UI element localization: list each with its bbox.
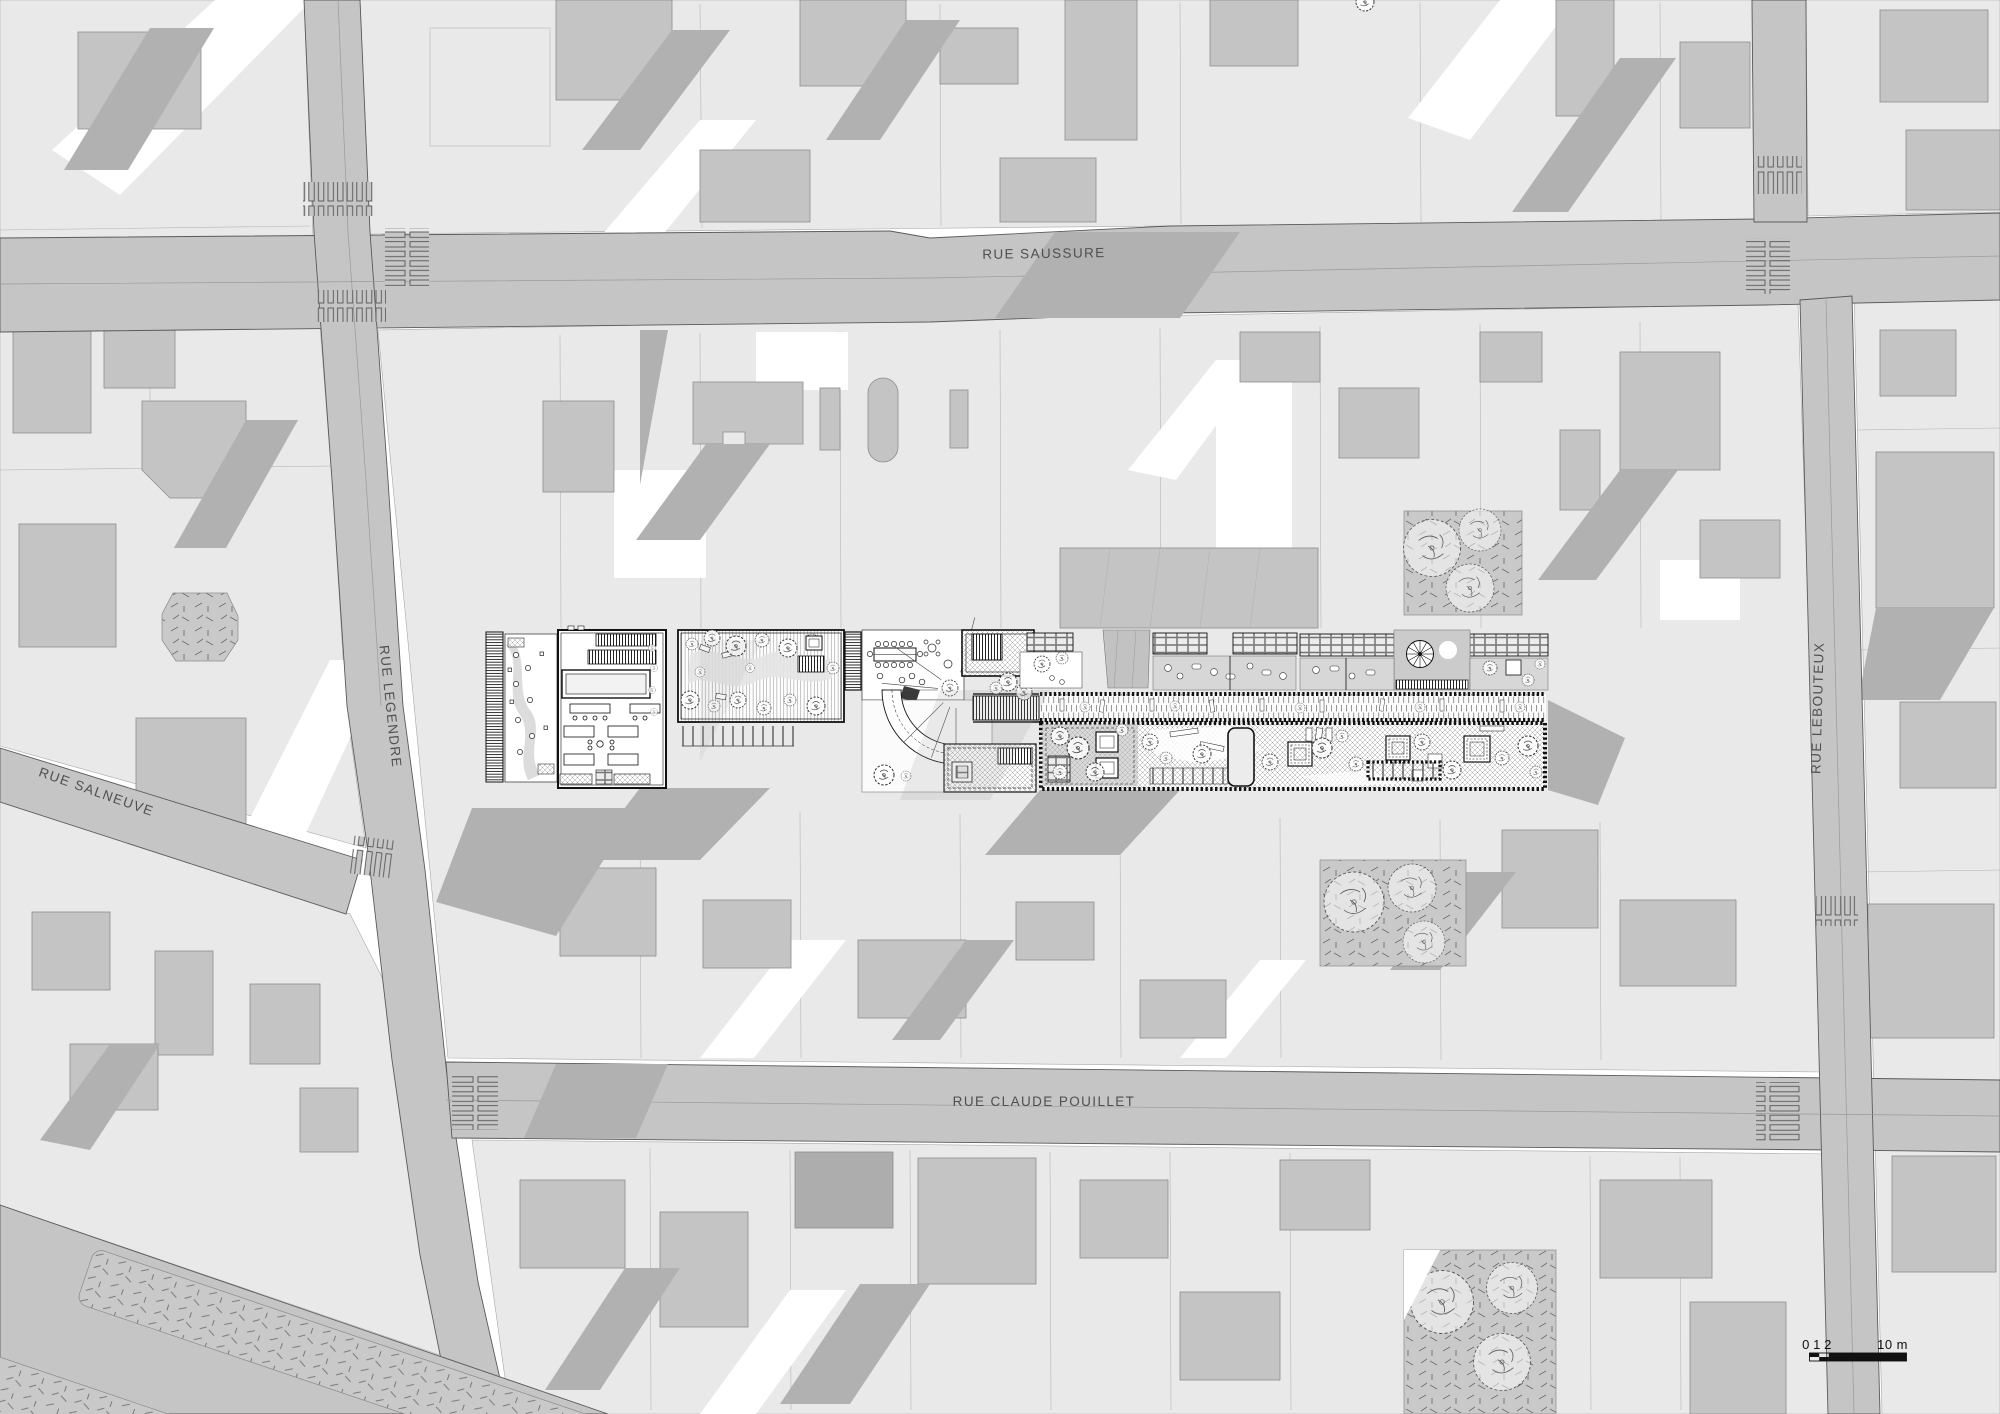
tree-icon [649,645,656,652]
tree-icon [784,694,796,706]
sawtooth-roof-building [1060,548,1318,628]
tree-icon [1056,652,1068,664]
street-label-saussure: RUE SAUSSURE [982,245,1106,262]
skylight [972,634,1002,660]
skylight [1096,732,1118,752]
tree-icon [1034,656,1050,672]
tree-icon [1459,509,1501,551]
tree-icon [1051,727,1069,745]
tree-icon [1388,864,1436,912]
tree-icon [1443,761,1461,779]
tree-icon [874,765,894,785]
grove-upper [1404,509,1523,615]
tree-icon [1086,763,1104,781]
tree-icon [807,697,825,715]
skylight [806,636,822,650]
scale-tick-2: 2 [1824,1337,1832,1352]
site-plan-canvas: RUE SAUSSURE RUE LEGENDRE RUE SALNEUVE R… [0,0,2000,1414]
tree-icon [1295,703,1305,713]
planter-band [1040,694,1546,720]
colonnade [1368,762,1440,779]
pergola [845,632,861,690]
tree-icon [651,709,658,716]
stair [596,634,656,646]
scale-end-label: 10 m [1877,1337,1908,1352]
tree-icon [1404,520,1461,577]
left-building [558,626,666,788]
tree-icon [649,687,656,694]
tree-icon [1160,752,1172,764]
tree-icon [686,638,698,650]
stair [1150,768,1228,784]
tree-icon [1116,724,1128,736]
tree-icon [827,662,839,674]
scale-tick-1: 1 [1813,1337,1821,1352]
stair [798,656,824,672]
tree-icon [1518,736,1538,756]
pool [1228,728,1254,786]
street-label-claude-pouillet: RUE CLAUDE POUILLET [953,1094,1136,1109]
tree-icon [1446,564,1494,612]
colonnade [682,726,794,746]
tree-icon [779,639,797,657]
tree-icon [1515,702,1525,712]
tree-icon [1349,757,1363,771]
main-roof-terrace [1041,723,1545,789]
railing [1396,680,1468,689]
tree-icon [1170,701,1180,711]
tree-icon [1324,872,1384,932]
tree-icon [1415,702,1425,712]
tree-icon [1535,659,1545,669]
tree-icon [1193,745,1211,763]
tree-icon [1530,766,1542,778]
tree-icon [1312,738,1332,758]
tree-icon [1336,730,1348,742]
stair [588,650,656,664]
garden-octagon [162,593,238,661]
grove-middle [1320,860,1466,966]
tree-icon [1067,737,1089,759]
tree-icon [1483,661,1497,675]
tree-icon [1080,702,1090,712]
tree-icon [1053,765,1067,779]
tree-icon [1522,674,1534,686]
tree-icon [757,701,771,715]
tree-icon [681,691,699,709]
tree-icon [1495,751,1509,765]
tree-icon [651,665,658,672]
tree-icon [1403,921,1445,963]
tree-icon [1142,734,1158,750]
grove-bottom [1404,1250,1556,1414]
tree-icon [1414,734,1430,750]
scale-tick-0: 0 [1802,1337,1810,1352]
spiral-stair-icon [1407,641,1434,668]
tree-icon [1474,1334,1531,1391]
tree-icon [1487,1263,1538,1314]
tree-icon [1262,754,1278,770]
left-terrace-strip [486,632,557,782]
